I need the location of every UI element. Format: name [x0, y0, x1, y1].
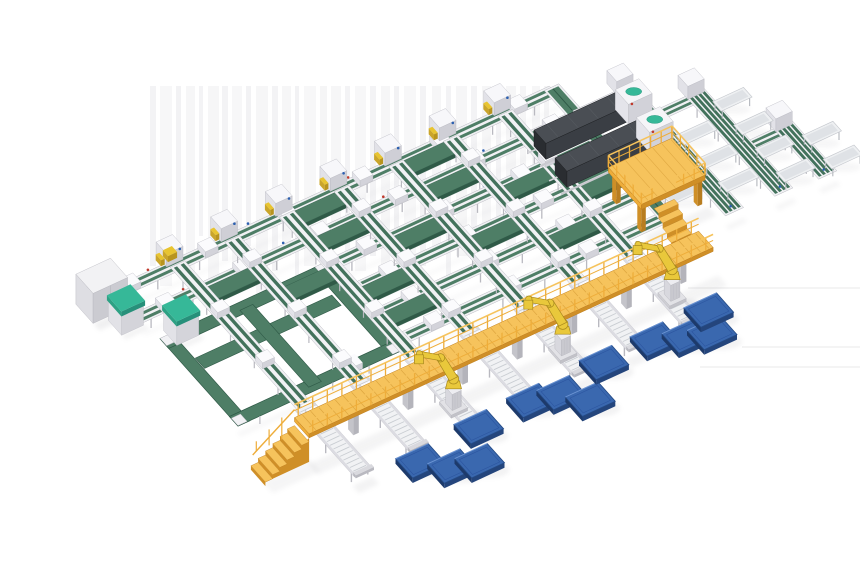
factory-line-render [0, 0, 860, 580]
isometric-scene [0, 0, 860, 580]
